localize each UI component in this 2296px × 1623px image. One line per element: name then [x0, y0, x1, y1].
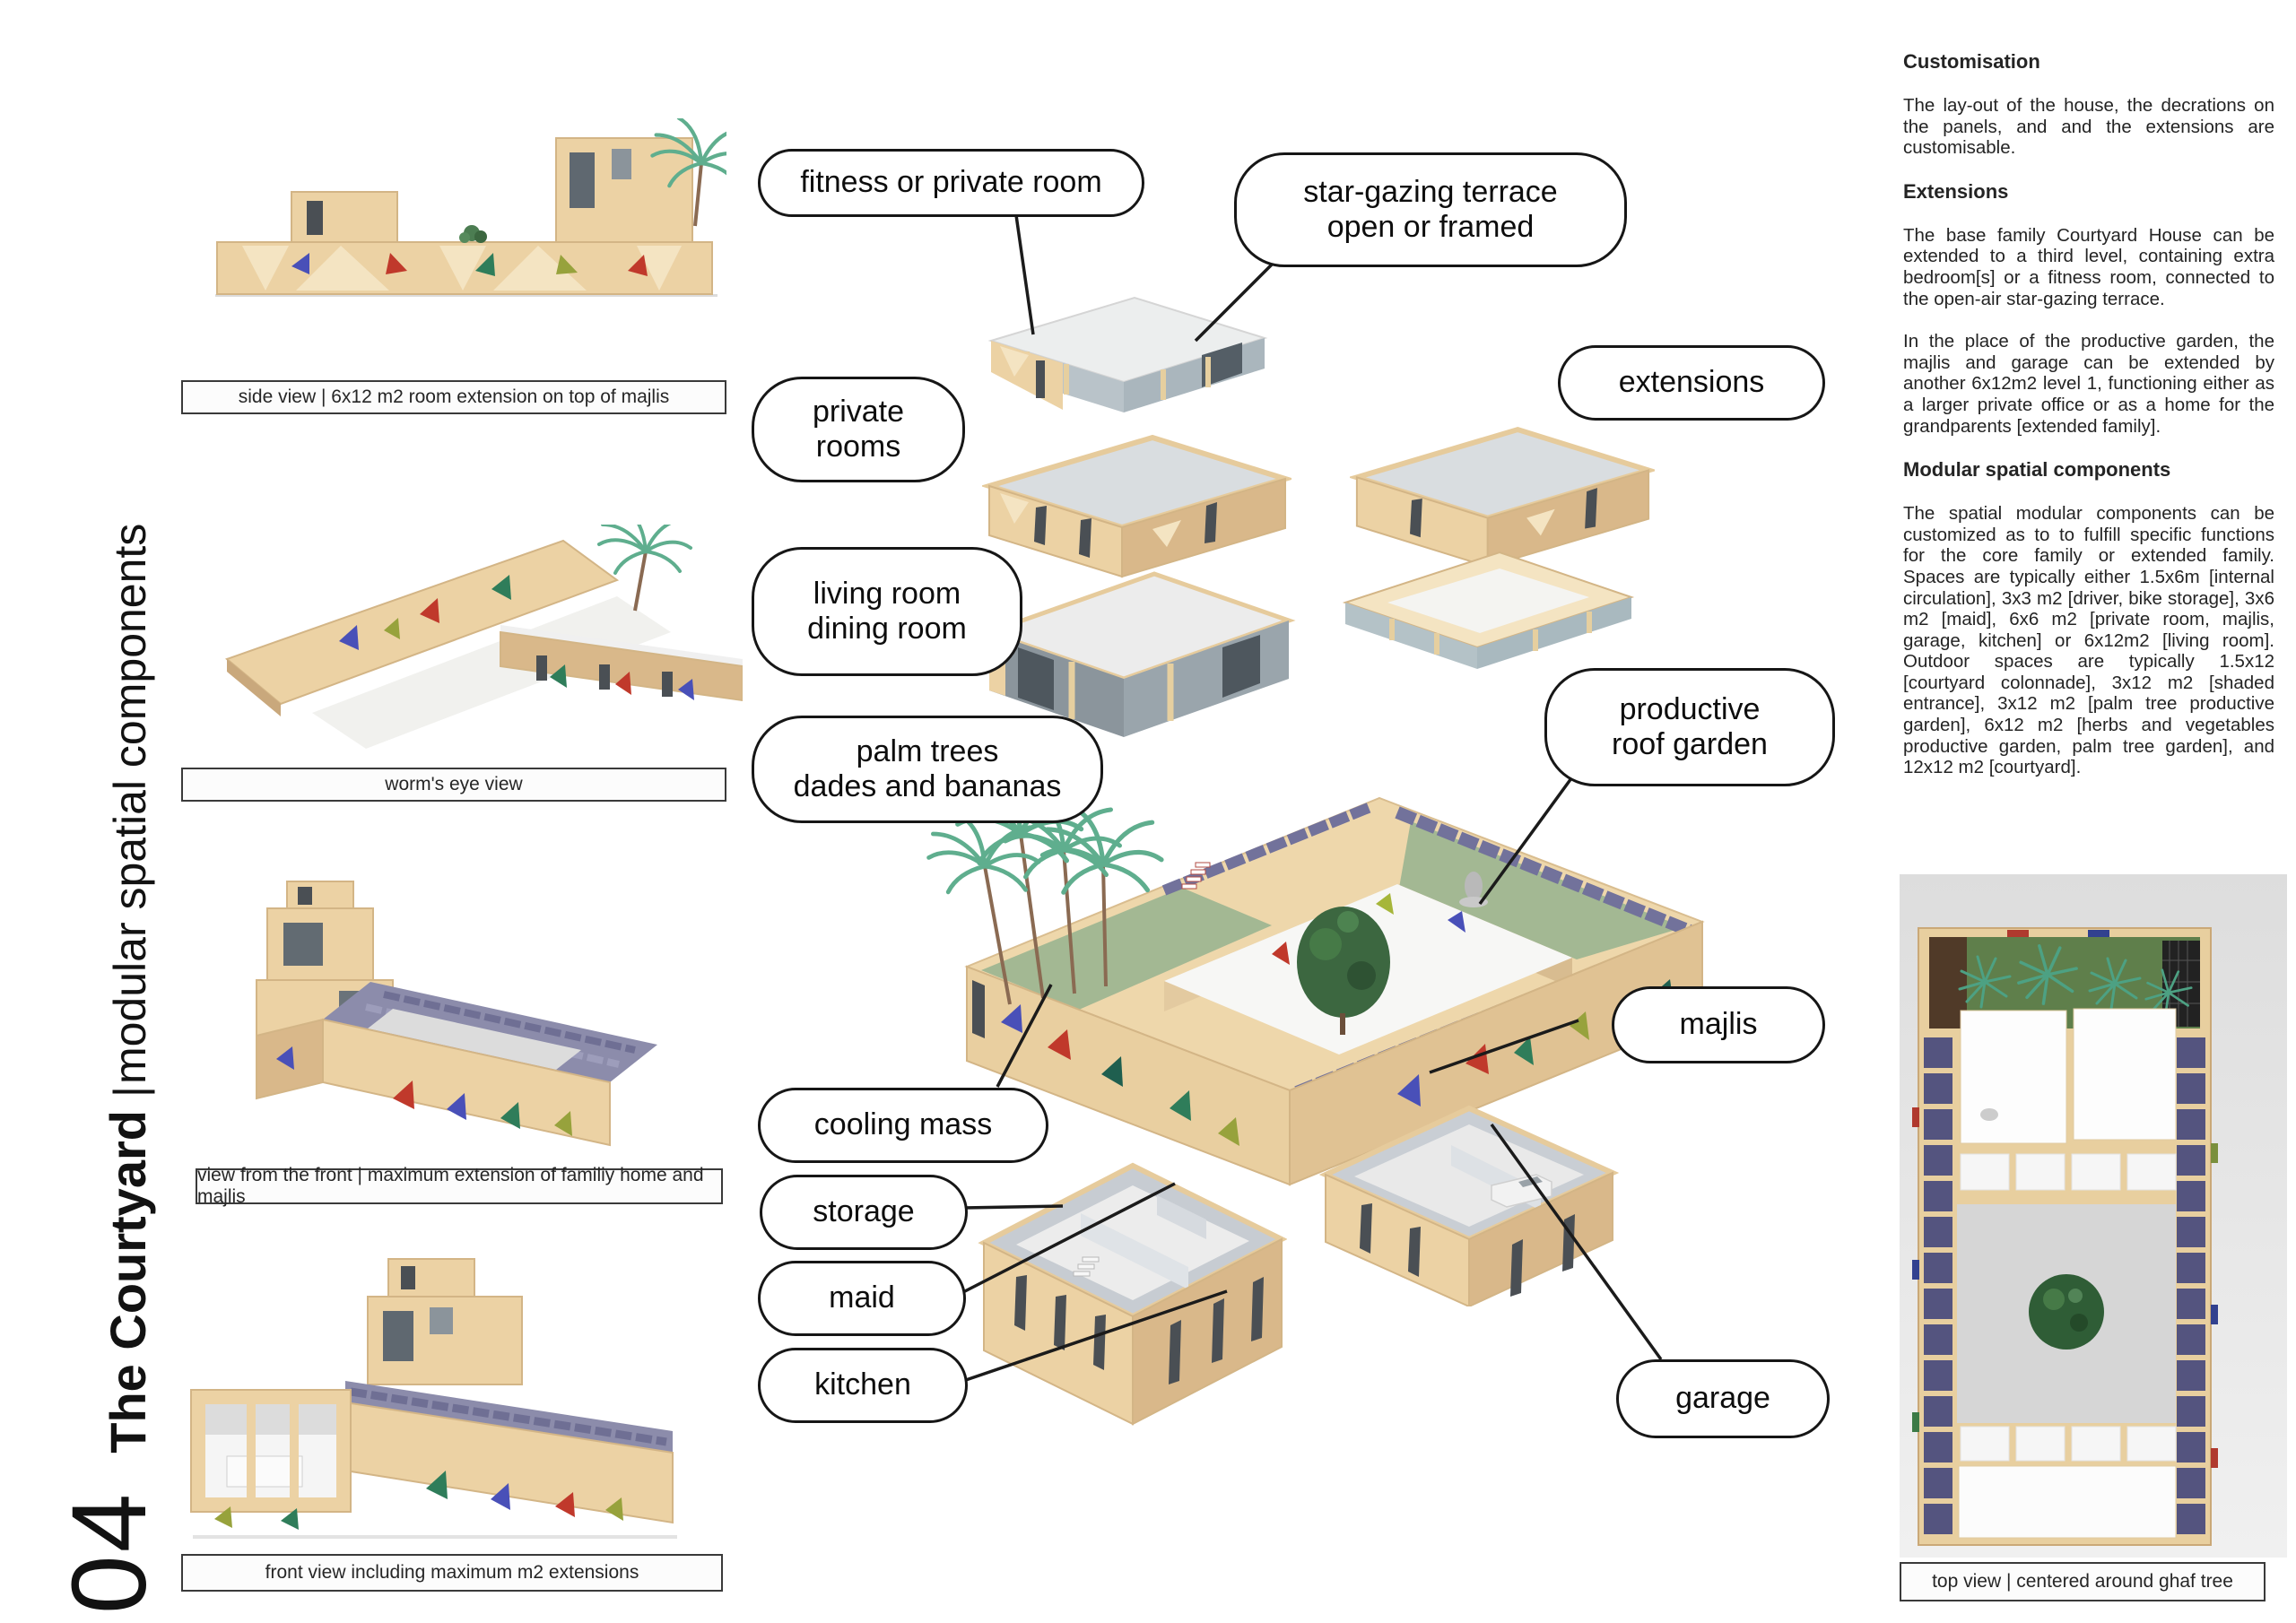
module-service-block	[973, 1146, 1287, 1464]
section-paragraph: The base family Courtyard House can be e…	[1903, 225, 2274, 309]
callout-label: private rooms	[813, 395, 904, 465]
palm-tree-icon	[695, 163, 701, 226]
render-side-view	[206, 118, 726, 325]
render-worms-eye-view	[204, 525, 743, 794]
callout-label: living room dining room	[807, 577, 967, 647]
callout-majlis: majlis	[1612, 986, 1825, 1063]
caption-text: view from the front | maximum extension …	[197, 1165, 721, 1208]
caption-text: worm's eye view	[385, 774, 522, 795]
callout-maid: maid	[758, 1261, 966, 1336]
caption-front-extensions: front view including maximum m2 extensio…	[181, 1554, 723, 1592]
module-private-rooms	[982, 430, 1291, 578]
callout-label: star-gazing terrace open or framed	[1303, 175, 1557, 246]
page-title: 04 The Courtyard|modular spatial compone…	[39, 404, 174, 1614]
module-fitness-room	[973, 289, 1278, 414]
section-heading: Modular spatial components	[1903, 458, 2274, 482]
title-name: The Courtyard	[100, 1110, 156, 1454]
callout-palm-trees: palm trees dades and bananas	[752, 716, 1103, 823]
caption-top-view: top view | centered around ghaf tree	[1900, 1562, 2266, 1601]
ghaf-tree-icon	[2029, 1274, 2104, 1350]
section-paragraph: The lay-out of the house, the decrations…	[1903, 95, 2274, 159]
page-number: 04	[48, 1491, 170, 1614]
presentation-board: 04 The Courtyard|modular spatial compone…	[0, 0, 2296, 1623]
section-modular-components: Modular spatial components The spatial m…	[1903, 458, 2274, 778]
callout-roof-garden: productive roof garden	[1544, 668, 1835, 786]
render-top-view	[1900, 874, 2287, 1558]
caption-text: side view | 6x12 m2 room extension on to…	[239, 386, 670, 408]
callout-label: majlis	[1680, 1007, 1758, 1042]
section-paragraph: The spatial modular components can be cu…	[1903, 503, 2274, 778]
title-text: The Courtyard|modular spatial components	[99, 524, 157, 1454]
ground-shadow	[193, 1535, 677, 1539]
section-extensions: Extensions The base family Courtyard Hou…	[1903, 180, 2274, 437]
callout-label: maid	[829, 1280, 895, 1315]
callout-label: garage	[1675, 1381, 1770, 1416]
roof-plate	[1961, 1011, 2066, 1143]
callout-cooling-mass: cooling mass	[758, 1088, 1048, 1163]
callout-label: cooling mass	[814, 1107, 992, 1142]
callout-garage: garage	[1616, 1359, 1830, 1438]
callout-label: fitness or private room	[800, 165, 1101, 200]
caption-view-front: view from the front | maximum extension …	[196, 1168, 723, 1204]
callout-storage: storage	[760, 1175, 968, 1250]
roof-plate	[2074, 1009, 2176, 1140]
callout-label: storage	[813, 1194, 914, 1229]
callout-private-rooms: private rooms	[752, 377, 965, 482]
page-title-rotated: 04 The Courtyard|modular spatial compone…	[48, 404, 183, 1614]
callout-label: kitchen	[814, 1367, 911, 1402]
title-separator: |	[105, 1086, 155, 1098]
section-customisation: Customisation The lay-out of the house, …	[1903, 50, 2274, 159]
callout-label: extensions	[1619, 365, 1765, 400]
callout-extensions: extensions	[1558, 345, 1825, 421]
caption-text: top view | centered around ghaf tree	[1932, 1571, 2233, 1593]
title-subtitle: modular spatial components	[105, 524, 155, 1084]
palm-tree-icon	[635, 551, 646, 611]
callout-living-dining: living room dining room	[752, 547, 1022, 676]
roof-plate	[1959, 1466, 2176, 1538]
module-framed-terrace	[1338, 543, 1639, 678]
callout-kitchen: kitchen	[758, 1348, 968, 1423]
callout-label: palm trees dades and bananas	[794, 734, 1062, 805]
callout-label: productive roof garden	[1612, 692, 1768, 763]
section-paragraph: In the place of the productive garden, t…	[1903, 331, 2274, 437]
caption-side-view: side view | 6x12 m2 room extension on to…	[181, 380, 726, 414]
render-front-m2-extensions	[175, 1245, 704, 1567]
callout-fitness: fitness or private room	[758, 149, 1144, 217]
description-panel: Customisation The lay-out of the house, …	[1903, 50, 2274, 800]
section-heading: Customisation	[1903, 50, 2274, 74]
caption-text: front view including maximum m2 extensio…	[265, 1562, 639, 1584]
section-heading: Extensions	[1903, 180, 2274, 204]
module-majlis-garage	[1317, 1096, 1622, 1306]
render-front-max-extension	[204, 874, 734, 1170]
callout-star-gazing: star-gazing terrace open or framed	[1234, 152, 1627, 267]
caption-worms-eye: worm's eye view	[181, 768, 726, 802]
